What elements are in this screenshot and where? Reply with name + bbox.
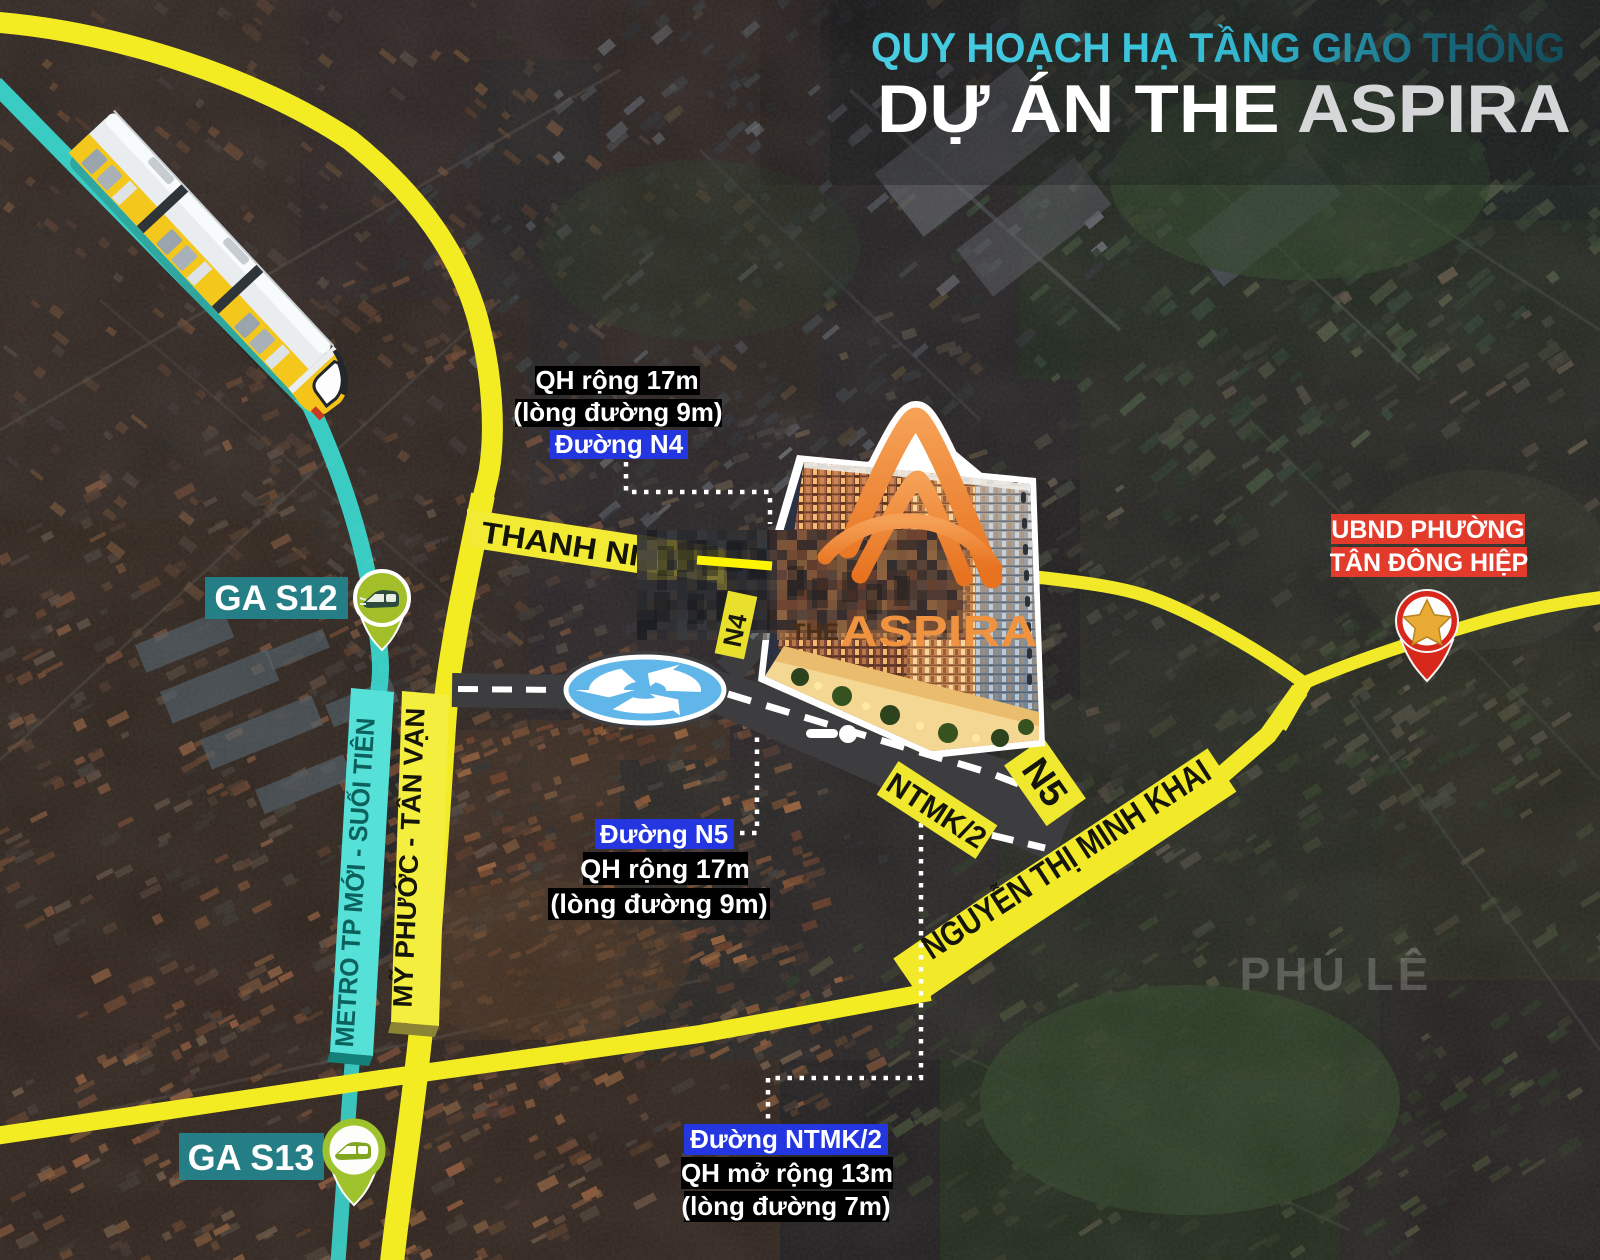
svg-text:(lòng đường 9m): (lòng đường 9m) xyxy=(550,889,767,919)
svg-text:Đường NTMK/2: Đường NTMK/2 xyxy=(690,1124,882,1154)
svg-text:(lòng đường 9m): (lòng đường 9m) xyxy=(513,397,722,427)
svg-text:PHÚ LÊ: PHÚ LÊ xyxy=(1240,948,1433,1000)
svg-text:Đường N5: Đường N5 xyxy=(600,819,728,849)
svg-text:QH rộng 17m: QH rộng 17m xyxy=(580,854,750,884)
svg-text:THE: THE xyxy=(791,619,839,646)
svg-text:GA S13: GA S13 xyxy=(188,1137,315,1178)
svg-text:QH mở rộng 13m: QH mở rộng 13m xyxy=(681,1158,893,1188)
svg-text:UBND PHƯỜNG: UBND PHƯỜNG xyxy=(1331,514,1524,544)
svg-text:QUY HOẠCH HẠ TẦNG GIAO THÔNG: QUY HOẠCH HẠ TẦNG GIAO THÔNG xyxy=(871,23,1565,71)
svg-text:ASPIRA: ASPIRA xyxy=(840,607,1038,656)
svg-text:Đường N4: Đường N4 xyxy=(555,429,684,459)
svg-text:GA S12: GA S12 xyxy=(214,579,337,618)
svg-text:(lòng đường 7m): (lòng đường 7m) xyxy=(681,1191,890,1221)
svg-text:DỰ ÁN THE ASPIRA: DỰ ÁN THE ASPIRA xyxy=(877,71,1571,147)
svg-text:QH rộng 17m: QH rộng 17m xyxy=(535,365,698,395)
svg-text:TÂN ĐÔNG HIỆP: TÂN ĐÔNG HIỆP xyxy=(1330,547,1529,577)
